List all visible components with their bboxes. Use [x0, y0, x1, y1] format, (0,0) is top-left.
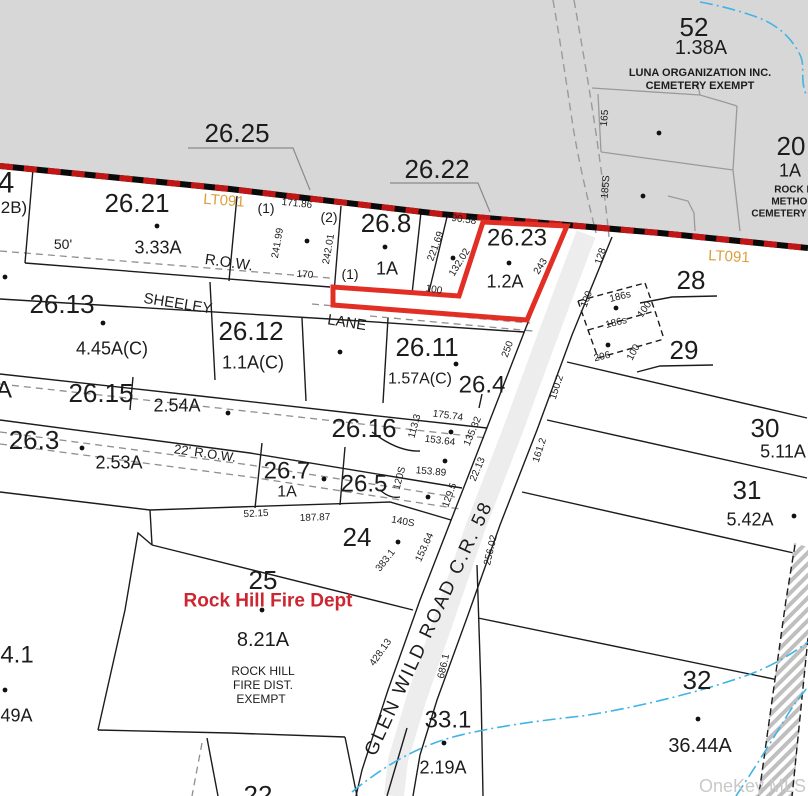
dim-250: 250 — [500, 339, 516, 359]
parcel-33-1-acreage: 2.19A — [419, 757, 466, 777]
lt091-label-east: LT091 — [708, 247, 750, 266]
parcel-center-dot — [696, 717, 701, 722]
road-name-sheeley: SHEELEY — [142, 290, 213, 318]
dim-90-58: 90.58 — [451, 213, 478, 227]
dim-242-01: 242.01 — [321, 233, 337, 265]
parcel-20-owner-line2: METHOD — [771, 197, 808, 208]
parcel-center-dot — [792, 514, 797, 519]
parcel-center-dot — [507, 261, 512, 266]
remnant-2-label: (2) — [320, 209, 337, 225]
parcel-center-dot — [641, 194, 646, 199]
dim-428-13: 428.13 — [368, 637, 395, 669]
parcel-26-23-number: 26.23 — [487, 224, 547, 251]
parcel-center-dot — [322, 477, 327, 482]
parcel-26-13-acreage: 4.45A(C) — [76, 338, 148, 358]
parcel-center-dot — [3, 275, 8, 280]
dim-175-74: 175.74 — [432, 408, 464, 423]
parcel-22-number: 22 — [244, 780, 273, 796]
dim-100-c: 100 — [579, 289, 595, 309]
parcel-a-label: A — [0, 376, 12, 403]
parcel-center-dot — [657, 131, 662, 136]
parcel-26-25-number: 26.25 — [204, 118, 269, 148]
parcel-center-dot — [442, 741, 447, 746]
parcel-25-owner-line2: FIRE DIST. — [233, 678, 293, 692]
parcel-center-dot — [454, 362, 459, 367]
dim-383-1: 383.1 — [374, 547, 398, 574]
railroad-hatch-band — [758, 543, 808, 796]
parcel-4-1-number: 4.1 — [0, 641, 33, 668]
parcel-28-number: 28 — [677, 265, 706, 295]
tax-parcel-map[interactable]: 521.38ALUNA ORGANIZATION INC.CEMETERY EX… — [0, 0, 808, 796]
parcel-30-acreage: 5.11A — [760, 441, 806, 461]
parcel-center-dot — [80, 446, 85, 451]
dim-113-3: 113.3 — [407, 413, 424, 440]
road-name-lane: LANE — [326, 311, 367, 334]
parcel-center-dot — [338, 350, 343, 355]
parcel-26-11-number: 26.11 — [395, 332, 458, 362]
parcel-26-13-number: 26.13 — [29, 289, 94, 319]
parcel-26-5-number: 26.5 — [341, 470, 388, 497]
parcel-52-acreage: 1.38A — [675, 37, 728, 59]
parcel-32-number: 32 — [683, 665, 712, 695]
parcel-52-owner-line1: LUNA ORGANIZATION INC. — [629, 67, 771, 79]
parcel-center-dot — [396, 540, 401, 545]
dim-140s: 140S — [390, 515, 415, 530]
parcel-31-acreage: 5.42A — [726, 509, 773, 529]
dim-150-2: 150.2 — [548, 373, 566, 401]
parcel-29-number: 29 — [670, 335, 699, 365]
parcel-25-owner-line1: ROCK HILL — [231, 664, 295, 678]
parcel-center-dot — [101, 321, 106, 326]
dim-52-15: 52.15 — [243, 508, 269, 520]
parcel-25-acreage: 8.21A — [237, 629, 290, 651]
dim-165: 165 — [599, 109, 611, 127]
watermark: OneKey MLS — [699, 776, 806, 796]
row-label-22ft: 22' R.O.W. — [173, 441, 237, 465]
parcel-center-dot — [3, 688, 8, 693]
parcel-26-23-acreage: 1.2A — [486, 271, 523, 291]
parcel-26-15-acreage: 2.54A — [153, 395, 200, 415]
parcel-26-4-number: 26.4 — [459, 371, 506, 398]
parcel-29-leader — [637, 365, 713, 372]
parcel-26-21-acreage: 3.33A — [134, 237, 181, 257]
parcel-26-12-number: 26.12 — [218, 316, 283, 346]
parcel-26-8-acreage: 1A — [376, 258, 398, 278]
parcel-25-owner-line3: EXEMPT — [236, 692, 286, 706]
parcel-20-number: 20 — [777, 131, 806, 161]
parcel-32-acreage: 36.44A — [668, 735, 732, 757]
parcel-20-acreage: 1A — [779, 160, 801, 180]
parcel-20-owner-line3: CEMETERY — [751, 209, 807, 220]
lt091-label-west: LT091 — [203, 191, 246, 211]
parcel-26-11-acreage: 1.57A(C) — [388, 371, 452, 388]
parcel-26-7-number: 26.7 — [264, 457, 311, 484]
parcel-24-number: 24 — [343, 522, 372, 552]
parcel-26-21-number: 26.21 — [104, 188, 169, 218]
parcel-20-owner-line1: ROCK H — [774, 185, 808, 196]
parcel-31-number: 31 — [733, 475, 762, 505]
parcel-26-12-acreage: 1.1A(C) — [222, 352, 284, 372]
parcel-center-dot — [383, 245, 388, 250]
dim-187-87: 187.87 — [300, 512, 331, 524]
parcel-33-1-number: 33.1 — [425, 706, 472, 733]
parcel-26-7-acreage: 1A — [277, 484, 297, 501]
fire-dept-name: Rock Hill Fire Dept — [184, 591, 354, 612]
parcel-map-viewport: 521.38ALUNA ORGANIZATION INC.CEMETERY EX… — [0, 0, 808, 796]
parcel-center-dot — [305, 239, 310, 244]
remnant-1b-label: (1) — [341, 266, 358, 282]
dim-153-89: 153.89 — [415, 465, 447, 479]
parcel-center-dot — [443, 459, 448, 464]
dim-171-86: 171.86 — [281, 197, 313, 211]
parcel-2b-label: 2B) — [1, 198, 27, 217]
dim-186s-2: 186s — [604, 315, 628, 331]
dim-170: 170 — [296, 269, 314, 281]
parcel-26-3-acreage: 2.53A — [95, 452, 142, 472]
parcel-center-dot — [426, 495, 431, 500]
dim-256-02: 256.02 — [482, 534, 500, 567]
parcel-26-8-number: 26.8 — [361, 208, 412, 238]
dim-153-64-b: 153.64 — [413, 531, 436, 564]
parcel-26-3-number: 26.3 — [9, 425, 60, 455]
dim-221-69: 221.69 — [426, 230, 447, 263]
parcel-4-1-acreage: .49A — [0, 705, 33, 725]
parcel-center-dot — [614, 306, 619, 311]
dim-185s: 185S — [599, 175, 612, 200]
dim-241-99: 241.99 — [270, 227, 286, 259]
parcel-26-22-number: 26.22 — [404, 154, 469, 184]
remnant-1-label: (1) — [257, 200, 274, 216]
parcel-26-16-number: 26.16 — [331, 413, 396, 443]
parcel-center-dot — [226, 411, 231, 416]
row-label-sheeley: R.O.W. — [204, 251, 254, 275]
parcel-26-15-number: 26.15 — [68, 378, 133, 408]
parcel-4-number: 4 — [0, 167, 14, 200]
parcel-52-owner-line2: CEMETERY EXEMPT — [646, 80, 755, 92]
dim-153-64-a: 153.64 — [424, 434, 456, 449]
parcel-center-dot — [449, 430, 454, 435]
parcel-30-number: 30 — [751, 413, 780, 443]
parcel-center-dot — [155, 224, 160, 229]
parcel-center-dot — [606, 343, 611, 348]
dim-50ft: 50' — [54, 236, 72, 252]
